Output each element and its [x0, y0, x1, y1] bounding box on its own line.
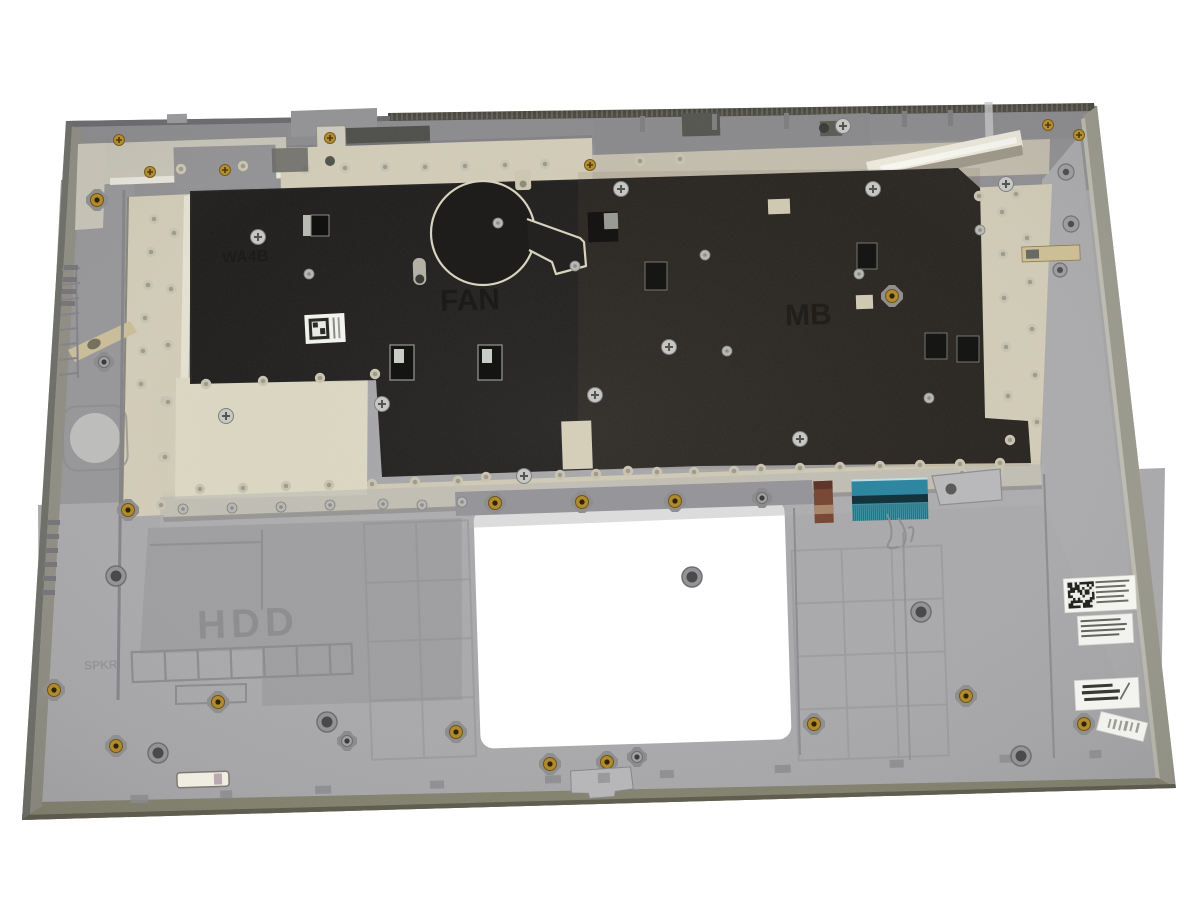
svg-text:WA4B: WA4B	[222, 248, 269, 267]
svg-text:HDD: HDD	[196, 600, 299, 648]
svg-text:SPKR: SPKR	[84, 657, 118, 672]
svg-text:FAN: FAN	[439, 283, 500, 318]
svg-text:MB: MB	[784, 298, 832, 333]
